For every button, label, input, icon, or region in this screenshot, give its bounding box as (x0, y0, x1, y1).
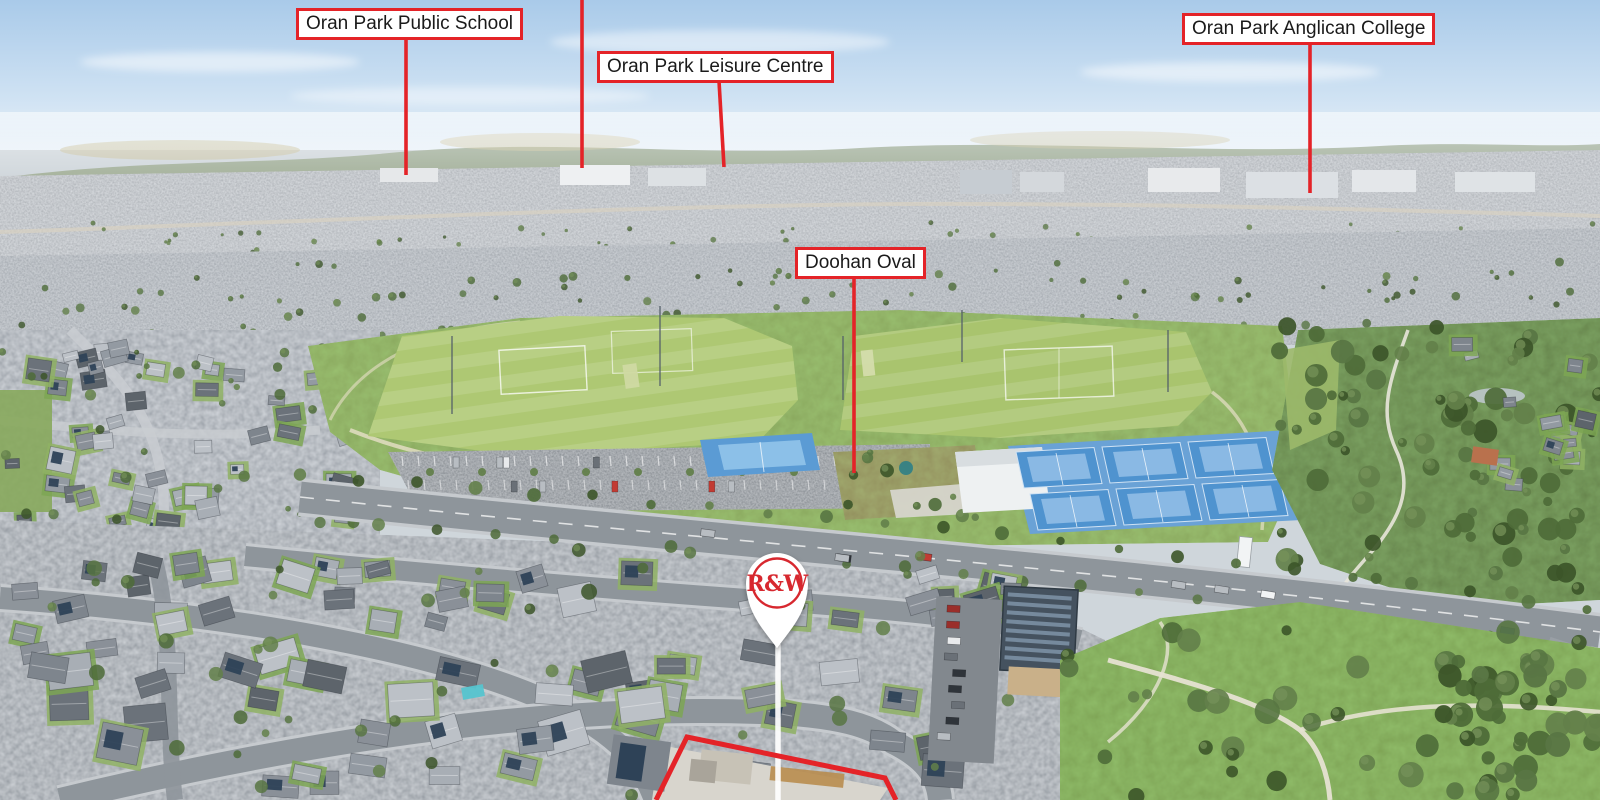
aerial-photo: R&W Oran Park Public School Oran Park Le… (0, 0, 1600, 800)
brand-pin: R&W (746, 553, 808, 648)
pin-body (746, 553, 808, 648)
label-anglican-college: Oran Park Anglican College (1182, 13, 1435, 45)
pin-brand-text: R&W (746, 571, 808, 597)
leader-lines (406, 0, 1310, 473)
label-doohan-oval: Doohan Oval (795, 247, 926, 279)
label-leisure-centre: Oran Park Leisure Centre (597, 51, 834, 83)
label-public-school: Oran Park Public School (296, 8, 523, 40)
annotation-overlay: R&W (0, 0, 1600, 800)
leader-line-leisure-centre (719, 81, 724, 167)
